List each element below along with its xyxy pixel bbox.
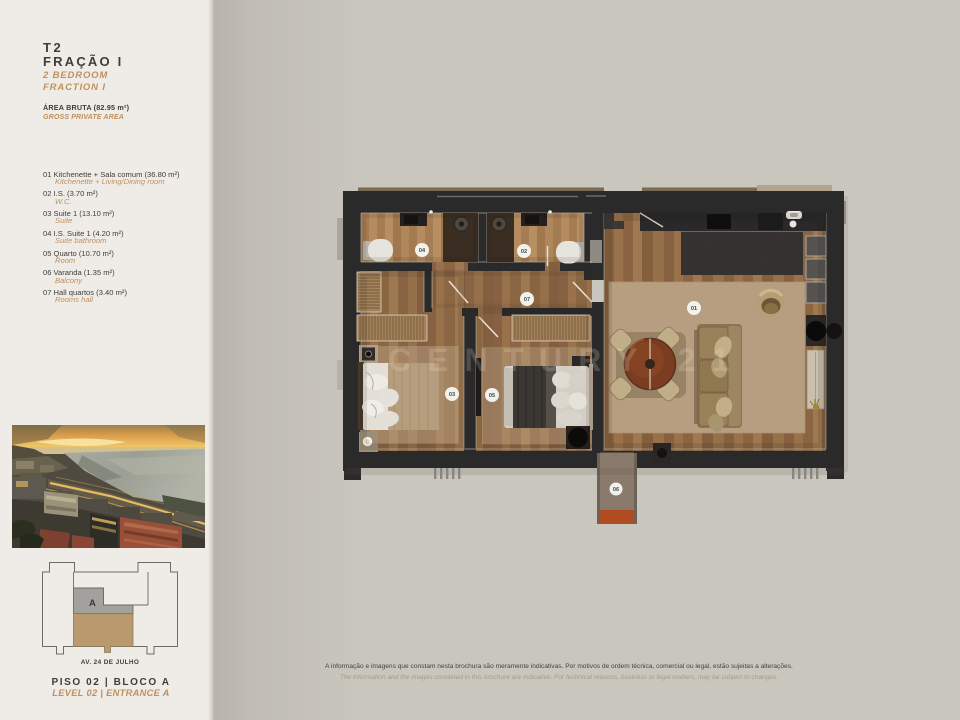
svg-text:04: 04 bbox=[419, 248, 426, 254]
svg-text:02: 02 bbox=[521, 249, 527, 255]
svg-text:CENTURY 21: CENTURY 21 bbox=[388, 342, 745, 378]
svg-text:A: A bbox=[89, 598, 96, 609]
svg-text:03: 03 bbox=[449, 392, 455, 398]
svg-text:07: 07 bbox=[524, 297, 530, 303]
svg-text:05: 05 bbox=[489, 393, 495, 399]
svg-text:06: 06 bbox=[613, 487, 619, 493]
svg-text:01: 01 bbox=[691, 306, 697, 312]
